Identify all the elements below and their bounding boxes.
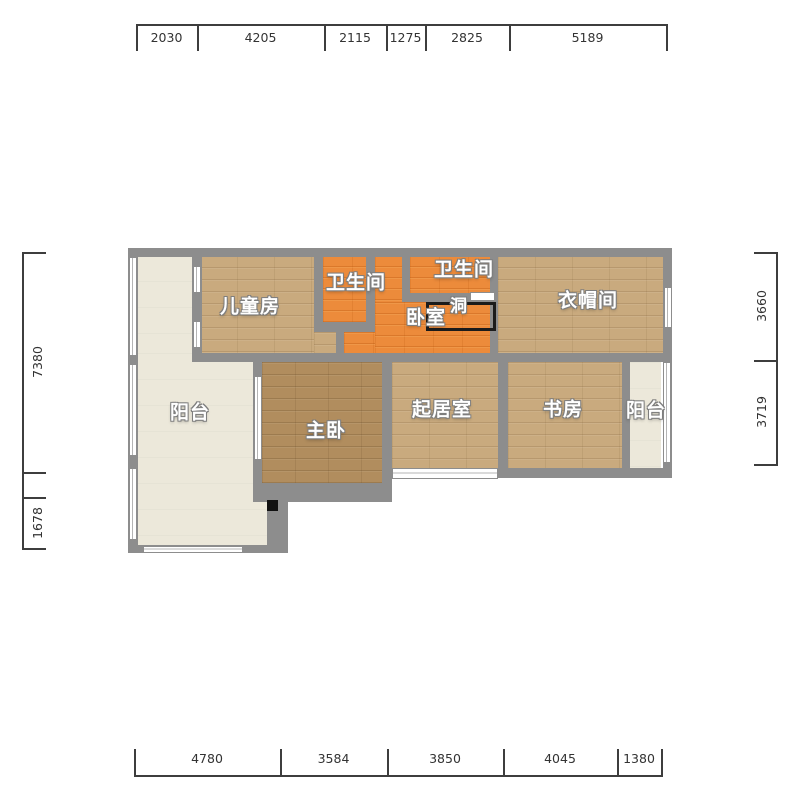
shelf-marker [470, 292, 495, 301]
floor-balcony-left-lower [138, 353, 267, 545]
black-square-marker [267, 500, 278, 511]
wall-living-study [498, 362, 508, 478]
balcony-bottom-window [143, 546, 243, 553]
wall-bottom-right-section [498, 468, 672, 478]
bathroom-right-label: 卫生间 [434, 261, 494, 280]
cloakroom-label: 衣帽间 [558, 292, 618, 311]
wall-bath-left-bottom [314, 322, 375, 332]
floor-bedroom-ext [344, 332, 375, 353]
kids-wall-window-1 [193, 266, 201, 293]
bathroom-left-label: 卫生间 [326, 274, 386, 293]
wall-master-living [382, 362, 392, 502]
floor-kids-room-ext [314, 332, 336, 353]
study-label: 书房 [543, 401, 583, 420]
master-wall-window [254, 376, 262, 460]
floor-plan-canvas: 203042052115127528255189 478035843850404… [0, 0, 800, 800]
wall-kids-bedroom-stub [336, 332, 344, 353]
floor-plan-drawing: 儿童房卫生间卫生间卧室洞衣帽间阳台主卧起居室书房阳台 [0, 0, 800, 800]
master-bedroom-label: 主卧 [306, 422, 346, 441]
kids-wall-window-2 [193, 321, 201, 348]
wall-kids-bath-left [314, 255, 323, 332]
wall-middle-horizontal [192, 353, 672, 362]
wall-top-outer [128, 248, 672, 257]
left-wall-window-3 [129, 468, 137, 540]
hole-label: 洞 [450, 299, 468, 316]
left-wall-window-1 [129, 257, 137, 356]
balcony-left-label: 阳台 [170, 404, 210, 423]
bedroom-label: 卧室 [406, 309, 446, 328]
kids-room-label: 儿童房 [220, 298, 280, 317]
right-wall-window [664, 287, 672, 328]
floor-balcony-left-upper [138, 255, 194, 362]
living-room-label: 起居室 [412, 401, 472, 420]
balcony-right-label: 阳台 [626, 402, 666, 421]
left-wall-window-2 [129, 364, 137, 456]
living-bottom-window [392, 468, 498, 479]
